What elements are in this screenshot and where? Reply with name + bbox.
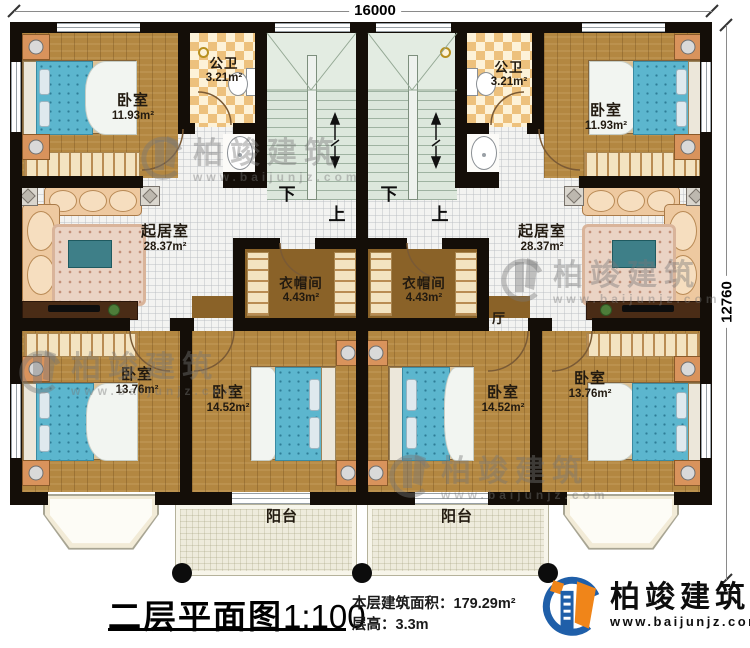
column — [172, 563, 192, 583]
room-label-balcony-left: 阳台 — [266, 508, 298, 526]
plan-info: 本层建筑面积：179.29m² 层高：3.3m — [352, 594, 516, 636]
hall-label: 厅 — [492, 308, 505, 327]
room-label-bedroom-bottom-left: 卧室 13.76m² — [116, 366, 159, 397]
room-label-bedroom-mid-left: 卧室 14.52m² — [207, 384, 250, 415]
room-label-bedroom-top-left: 卧室 11.93m² — [112, 92, 154, 123]
company-name: 柏竣建筑 — [610, 581, 750, 614]
room-label-bedroom-top-right: 卧室 11.93m² — [585, 102, 627, 133]
room-label-bath-right: 公卫 3.21m² — [491, 60, 527, 89]
dimension-height: 12760 — [719, 276, 736, 328]
stair-up-label-left: 上 — [329, 200, 346, 225]
room-label-bath-left: 公卫 3.21m² — [206, 56, 242, 85]
dimension-width: 16000 — [349, 2, 401, 19]
room-label-living-left: 起居室 28.37m² — [141, 223, 189, 254]
column — [352, 563, 372, 583]
stair-up-label-right: 上 — [432, 200, 449, 225]
company-website: www.baijunjz.com — [610, 614, 750, 629]
floor-height-value: 3.3m — [396, 617, 429, 633]
room-label-bedroom-mid-right: 卧室 14.52m² — [482, 384, 525, 415]
room-label-closet-left: 衣帽间 4.43m² — [279, 276, 323, 305]
company-logo: 柏竣建筑 www.baijunjz.com — [538, 572, 750, 638]
floor-height-label: 层高： — [352, 617, 396, 633]
title-underline — [108, 628, 346, 631]
stair-down-label-left: 下 — [279, 180, 296, 205]
company-logo-icon — [538, 572, 602, 638]
stair-lines — [267, 33, 457, 90]
floor-area-value: 179.29m² — [454, 596, 516, 612]
floor-plan: 卧室 11.93m² 卧室 11.93m² 公卫 3.21m² 公卫 3.21m… — [0, 0, 750, 648]
room-label-living-right: 起居室 28.37m² — [518, 223, 566, 254]
stair-direction-arrows — [331, 114, 440, 167]
stair-down-label-right: 下 — [381, 180, 398, 205]
room-label-balcony-right: 阳台 — [441, 508, 473, 526]
room-label-closet-right: 衣帽间 4.43m² — [402, 276, 446, 305]
room-label-bedroom-bottom-right: 卧室 13.76m² — [569, 370, 612, 401]
floor-area-label: 本层建筑面积： — [352, 596, 454, 612]
